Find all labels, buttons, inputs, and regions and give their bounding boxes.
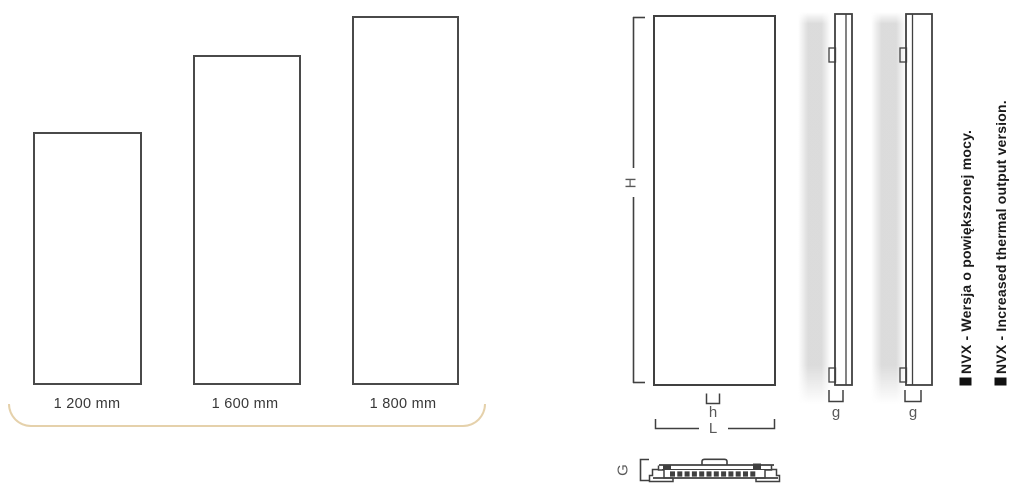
depth-bracket-nvx xyxy=(905,390,921,402)
wall-shadow-nvx xyxy=(871,12,906,404)
radiator-dimensions-figure: 1 200 mm 1 600 mm 1 800 mm xyxy=(0,0,1025,499)
depth-bracket-standard xyxy=(829,390,843,402)
height-dimension-line xyxy=(633,17,645,383)
bottom-connection-bracket xyxy=(707,394,720,404)
front-view xyxy=(654,16,775,385)
annotation-en: NVX - Increased thermal output version. xyxy=(993,100,1009,374)
annotation-pl: NVX - Wersja o powiększonej mocy. xyxy=(958,130,974,374)
wall-shadow-standard xyxy=(798,12,831,404)
annotation-marker xyxy=(960,378,972,386)
dim-label-g-standard: g xyxy=(832,404,840,421)
dim-label-G: G xyxy=(615,464,632,476)
dimension-drawing: H h L g g NVX - Wersja o powię xyxy=(0,0,1025,499)
dim-label-H: H xyxy=(623,178,640,189)
dim-label-L: L xyxy=(709,420,717,437)
side-view-standard xyxy=(829,14,852,385)
dim-label-g-nvx: g xyxy=(909,404,917,421)
annotation-marker xyxy=(995,378,1007,386)
section-bracket-G xyxy=(641,460,650,481)
bottom-section-view xyxy=(650,459,780,481)
dim-label-h: h xyxy=(709,404,717,421)
